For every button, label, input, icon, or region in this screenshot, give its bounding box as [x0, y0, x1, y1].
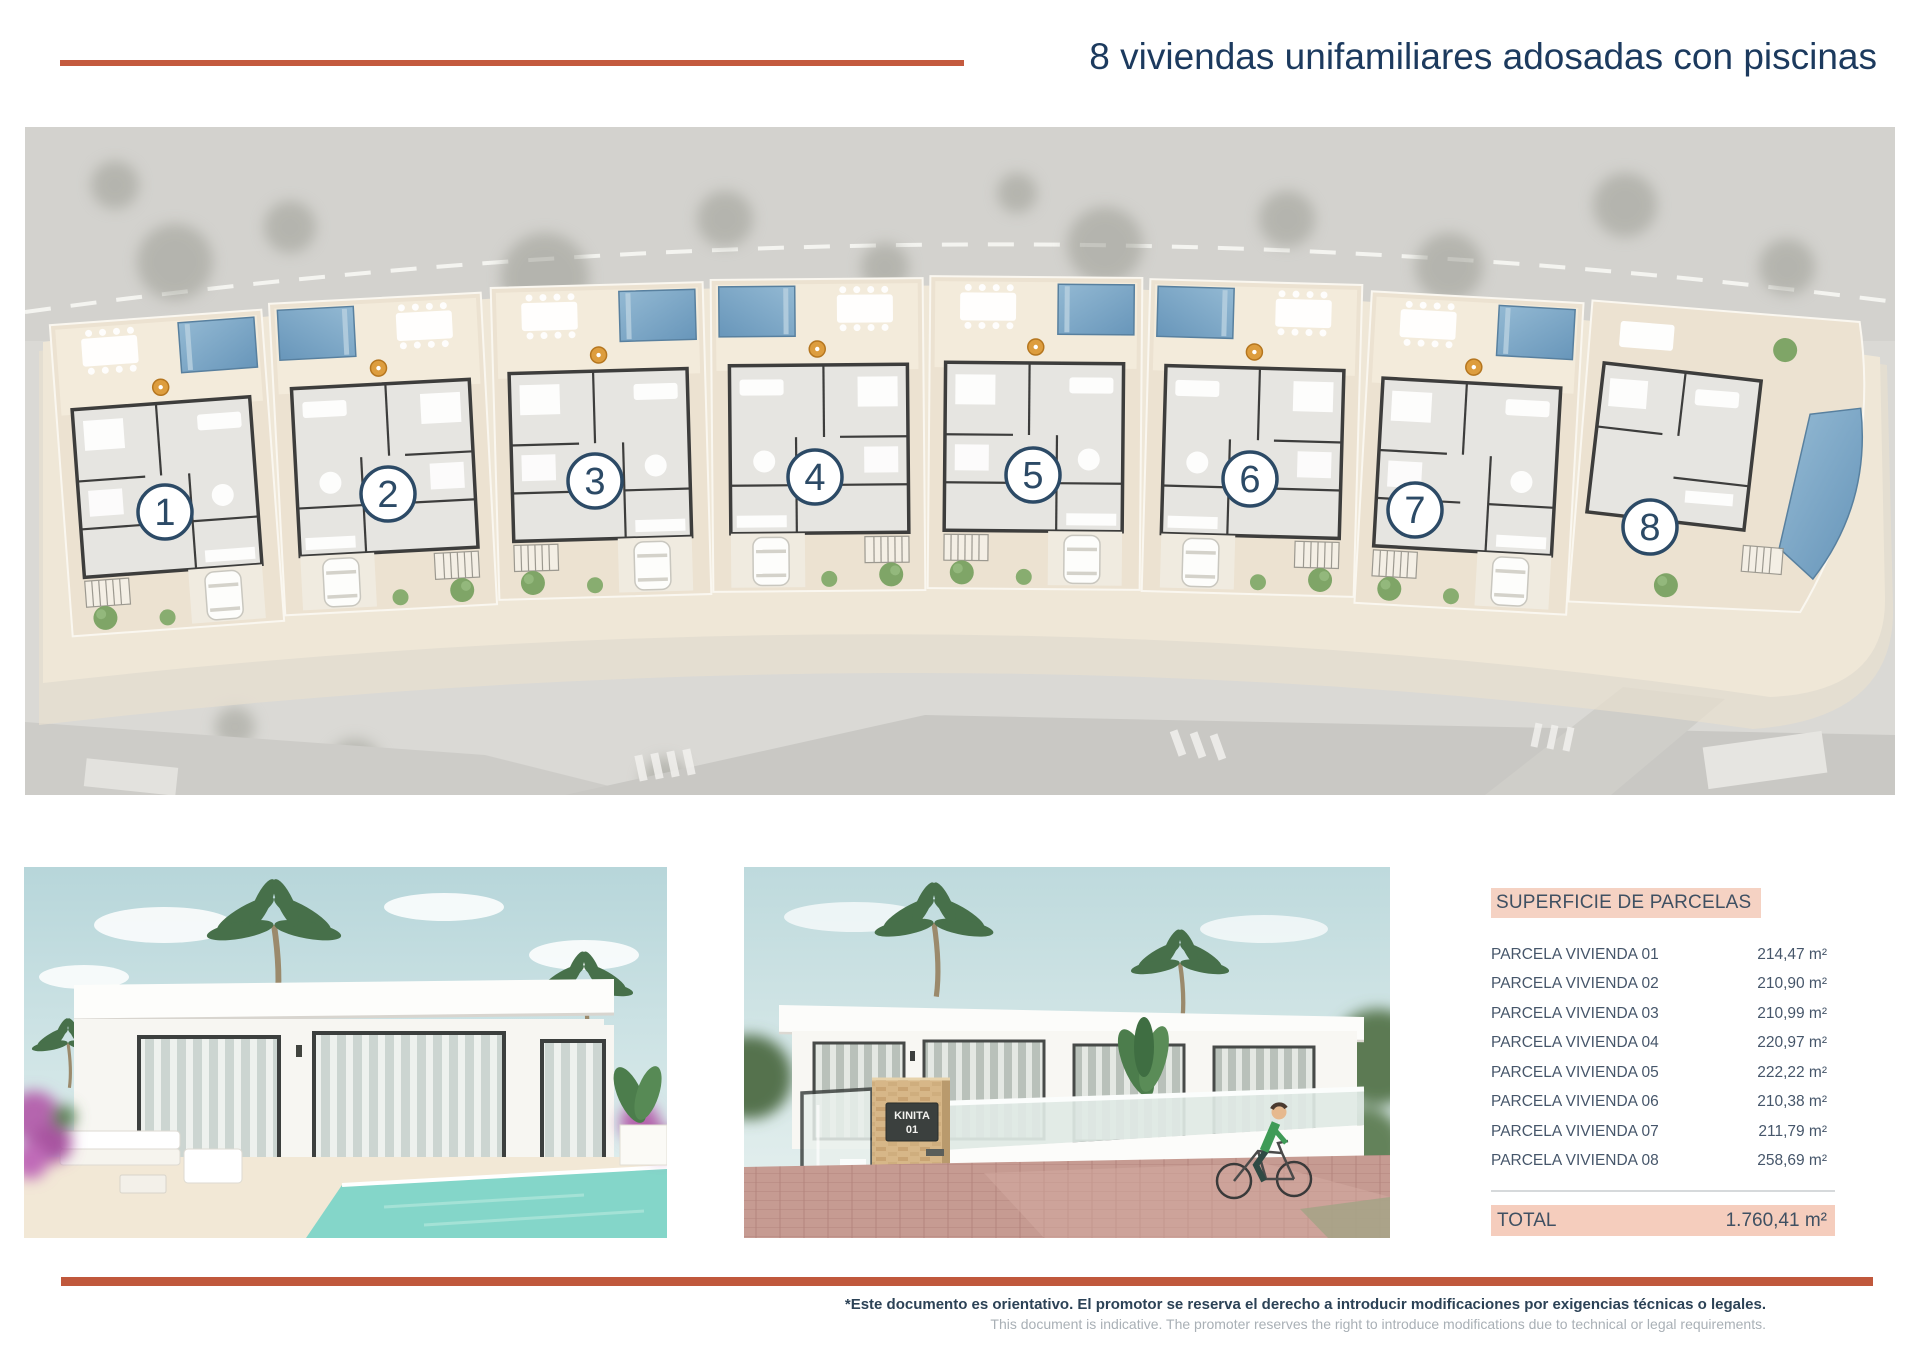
mail-slot — [926, 1149, 944, 1156]
plot-badge-3: 3 — [568, 454, 622, 508]
parcel-label: PARCELA VIVIENDA 01 — [1491, 946, 1659, 964]
parcel-area: 210,99 m² — [1757, 1005, 1835, 1023]
villa-pool-render — [24, 867, 667, 1238]
title-accent-line — [60, 60, 964, 66]
svg-text:4: 4 — [804, 457, 825, 499]
parcel-label: PARCELA VIVIENDA 08 — [1491, 1152, 1659, 1170]
glass-door — [542, 1041, 604, 1159]
plot-badge-6: 6 — [1223, 452, 1277, 506]
table-row: PARCELA VIVIENDA 04 220,97 m² — [1491, 1029, 1835, 1059]
villa-street-render: KINITA 01 — [744, 867, 1390, 1238]
parcel-area: 210,38 m² — [1757, 1093, 1835, 1111]
plot-3 — [491, 282, 712, 600]
parcel-label: PARCELA VIVIENDA 04 — [1491, 1034, 1659, 1052]
disclaimer-english: This document is indicative. The promote… — [845, 1316, 1766, 1334]
plot-badge-8: 8 — [1623, 500, 1677, 554]
table-divider — [1491, 1190, 1835, 1192]
wall-lamp — [296, 1045, 302, 1057]
table-row: PARCELA VIVIENDA 01 214,47 m² — [1491, 940, 1835, 970]
surface-table: SUPERFICIE DE PARCELAS PARCELA VIVIENDA … — [1491, 888, 1835, 1236]
plot-badge-1: 1 — [138, 485, 192, 539]
svg-text:5: 5 — [1022, 455, 1043, 497]
sign-number: 01 — [906, 1124, 918, 1136]
svg-text:7: 7 — [1404, 490, 1425, 532]
total-value: 1.760,41 m² — [1726, 1210, 1827, 1232]
parcel-label: PARCELA VIVIENDA 03 — [1491, 1005, 1659, 1023]
svg-text:8: 8 — [1639, 507, 1660, 549]
table-total-row: TOTAL 1.760,41 m² — [1491, 1205, 1835, 1236]
brochure-page: 8 viviendas unifamiliares adosadas con p… — [0, 0, 1920, 1357]
parcel-area: 222,22 m² — [1757, 1064, 1835, 1082]
plot-badge-4: 4 — [788, 450, 842, 504]
disclaimer-spanish: *Este documento es orientativo. El promo… — [845, 1296, 1766, 1315]
plot-badge-7: 7 — [1388, 483, 1442, 537]
parcel-area: 220,97 m² — [1757, 1034, 1835, 1052]
plot-7 — [1354, 291, 1583, 614]
total-label: TOTAL — [1497, 1210, 1556, 1232]
svg-text:6: 6 — [1239, 459, 1260, 501]
table-row: PARCELA VIVIENDA 06 210,38 m² — [1491, 1088, 1835, 1118]
disclaimer: *Este documento es orientativo. El promo… — [845, 1296, 1766, 1333]
svg-text:1: 1 — [154, 492, 175, 534]
footer-accent-line — [61, 1277, 1873, 1286]
table-row: PARCELA VIVIENDA 02 210,90 m² — [1491, 970, 1835, 1000]
parcel-label: PARCELA VIVIENDA 07 — [1491, 1123, 1659, 1141]
table-row: PARCELA VIVIENDA 03 210,99 m² — [1491, 999, 1835, 1029]
sign-name: KINITA — [894, 1110, 930, 1122]
wall-lamp — [910, 1051, 915, 1061]
svg-text:2: 2 — [377, 474, 398, 516]
parcel-area: 210,90 m² — [1757, 975, 1835, 993]
plot-badge-2: 2 — [361, 467, 415, 521]
surface-table-rows: PARCELA VIVIENDA 01 214,47 m² PARCELA VI… — [1491, 940, 1835, 1176]
parcel-label: PARCELA VIVIENDA 05 — [1491, 1064, 1659, 1082]
table-row: PARCELA VIVIENDA 05 222,22 m² — [1491, 1058, 1835, 1088]
plot-2 — [269, 293, 497, 616]
plot-6 — [1142, 279, 1363, 597]
page-title: 8 viviendas unifamiliares adosadas con p… — [1089, 36, 1877, 78]
plot-4 — [711, 278, 926, 592]
plot-5 — [928, 276, 1143, 590]
table-row: PARCELA VIVIENDA 07 211,79 m² — [1491, 1117, 1835, 1147]
parcel-label: PARCELA VIVIENDA 06 — [1491, 1093, 1659, 1111]
parcel-area: 214,47 m² — [1757, 946, 1835, 964]
site-plan-aerial: 1 2 3 4 5 6 7 8 — [25, 127, 1895, 795]
parcel-label: PARCELA VIVIENDA 02 — [1491, 975, 1659, 993]
glass-door — [314, 1033, 504, 1159]
plot-1 — [50, 310, 284, 637]
svg-text:3: 3 — [584, 461, 605, 503]
parcel-area: 258,69 m² — [1757, 1152, 1835, 1170]
plot-badge-5: 5 — [1006, 448, 1060, 502]
parcel-area: 211,79 m² — [1758, 1123, 1835, 1141]
surface-table-header: SUPERFICIE DE PARCELAS — [1491, 888, 1761, 918]
table-row: PARCELA VIVIENDA 08 258,69 m² — [1491, 1147, 1835, 1177]
